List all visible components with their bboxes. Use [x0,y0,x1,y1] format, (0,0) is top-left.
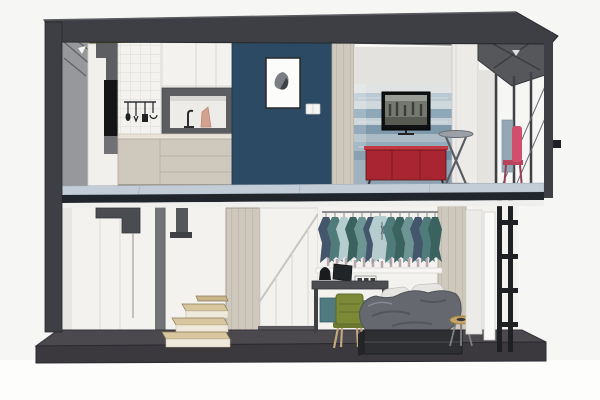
countertop [118,134,232,139]
upper-cabinets [162,38,232,88]
apartment-section-render [0,0,600,400]
stool-bowl [457,318,466,321]
understair-cabinets [258,208,318,334]
living-upper-wall [354,47,452,85]
credenza-body [366,150,446,180]
laptop [333,264,352,281]
bright-panel [484,212,495,340]
credenza-top [364,146,448,150]
support-post [155,206,165,332]
lower-cabinets [118,139,232,188]
alcove-shade [170,96,226,101]
upper-floor [62,29,561,192]
bed-base-side [358,330,364,356]
storage-bin [320,298,336,322]
desk-leg [314,289,318,333]
ground-slab-front [36,342,546,363]
tv [382,92,430,134]
pink-chair-back [512,126,522,162]
living-divider-column [332,43,354,188]
ceiling-bracket-2 [176,208,188,232]
chair-back [336,294,363,324]
bracket-foot [170,232,192,238]
desk-top [312,281,388,289]
dark-niche [104,80,120,136]
right-wall-panel [466,210,482,334]
lower-left-shadow [62,206,72,332]
feature-wall [232,39,332,188]
right-corner-post [544,32,553,198]
section-scene [0,0,600,400]
kitchen [118,38,232,188]
stair-column [226,208,260,332]
left-wall [45,22,62,332]
background-lower [0,360,600,400]
table-top [439,131,473,138]
tile-backsplash [118,40,162,136]
